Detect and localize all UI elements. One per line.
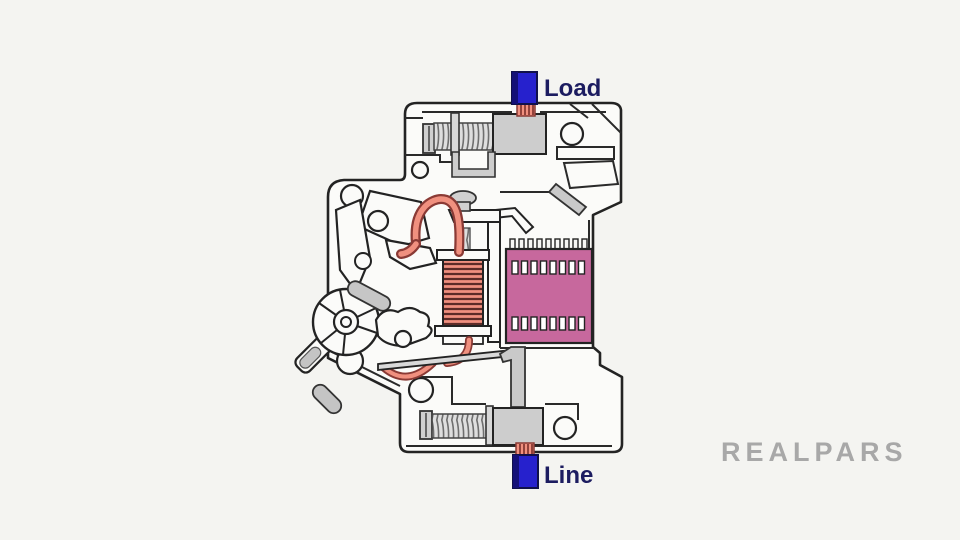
clamp-plate <box>486 406 493 445</box>
armature-hole <box>355 253 371 269</box>
terminal-spring <box>432 414 487 438</box>
rotor-axle <box>341 317 351 327</box>
housing-top-slot <box>557 147 614 159</box>
linkage-pivot <box>395 331 411 347</box>
molding-hole <box>561 123 583 145</box>
handle-stop-pin <box>310 382 345 417</box>
terminal-clamp-block <box>493 408 543 445</box>
coil-bottom-flange <box>435 326 491 336</box>
video-frame: Load Line REALPARS <box>0 0 960 540</box>
terminal-clamp-block <box>493 114 546 154</box>
line-terminal-shadow <box>513 455 519 488</box>
realpars-watermark-logo: REALPARS <box>721 437 941 468</box>
lever-pivot-hole <box>368 211 388 231</box>
molding-hole <box>412 162 428 178</box>
clamp-plate <box>451 113 459 155</box>
arc-chute <box>506 239 592 343</box>
load-label: Load <box>544 75 601 102</box>
line-label: Line <box>544 462 593 489</box>
load-terminal-shadow <box>512 72 518 104</box>
molding-hole <box>554 417 576 439</box>
molding-hole <box>409 378 433 402</box>
coil-yoke <box>488 212 500 342</box>
coil-windings <box>444 264 482 324</box>
housing-side-pocket <box>564 161 618 188</box>
terminal-spring <box>434 123 493 150</box>
coil-bracket <box>443 336 483 344</box>
